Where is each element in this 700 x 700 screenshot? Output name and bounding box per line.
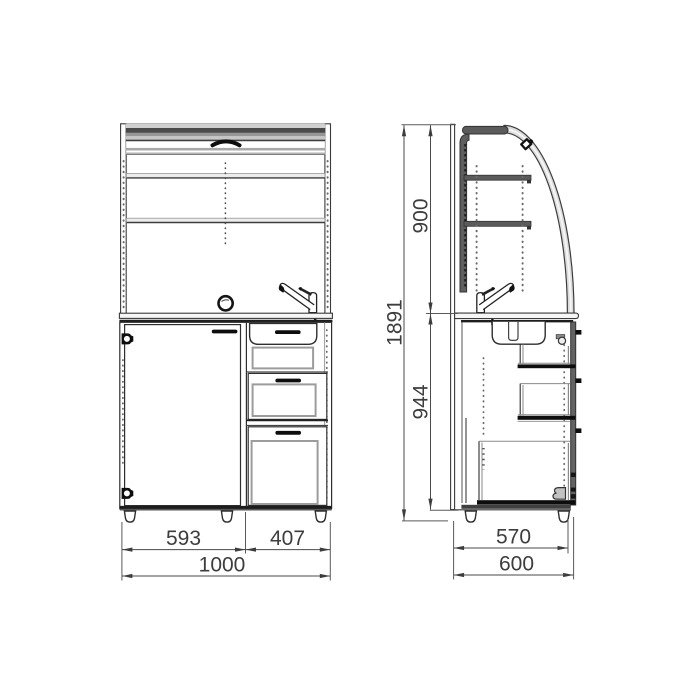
- svg-text:944: 944: [410, 384, 433, 419]
- svg-text:1891: 1891: [384, 299, 407, 346]
- svg-text:600: 600: [499, 553, 534, 576]
- svg-text:1000: 1000: [199, 554, 246, 577]
- svg-text:900: 900: [410, 198, 433, 233]
- svg-text:570: 570: [496, 526, 531, 549]
- svg-text:407: 407: [270, 527, 305, 550]
- svg-text:593: 593: [166, 527, 201, 550]
